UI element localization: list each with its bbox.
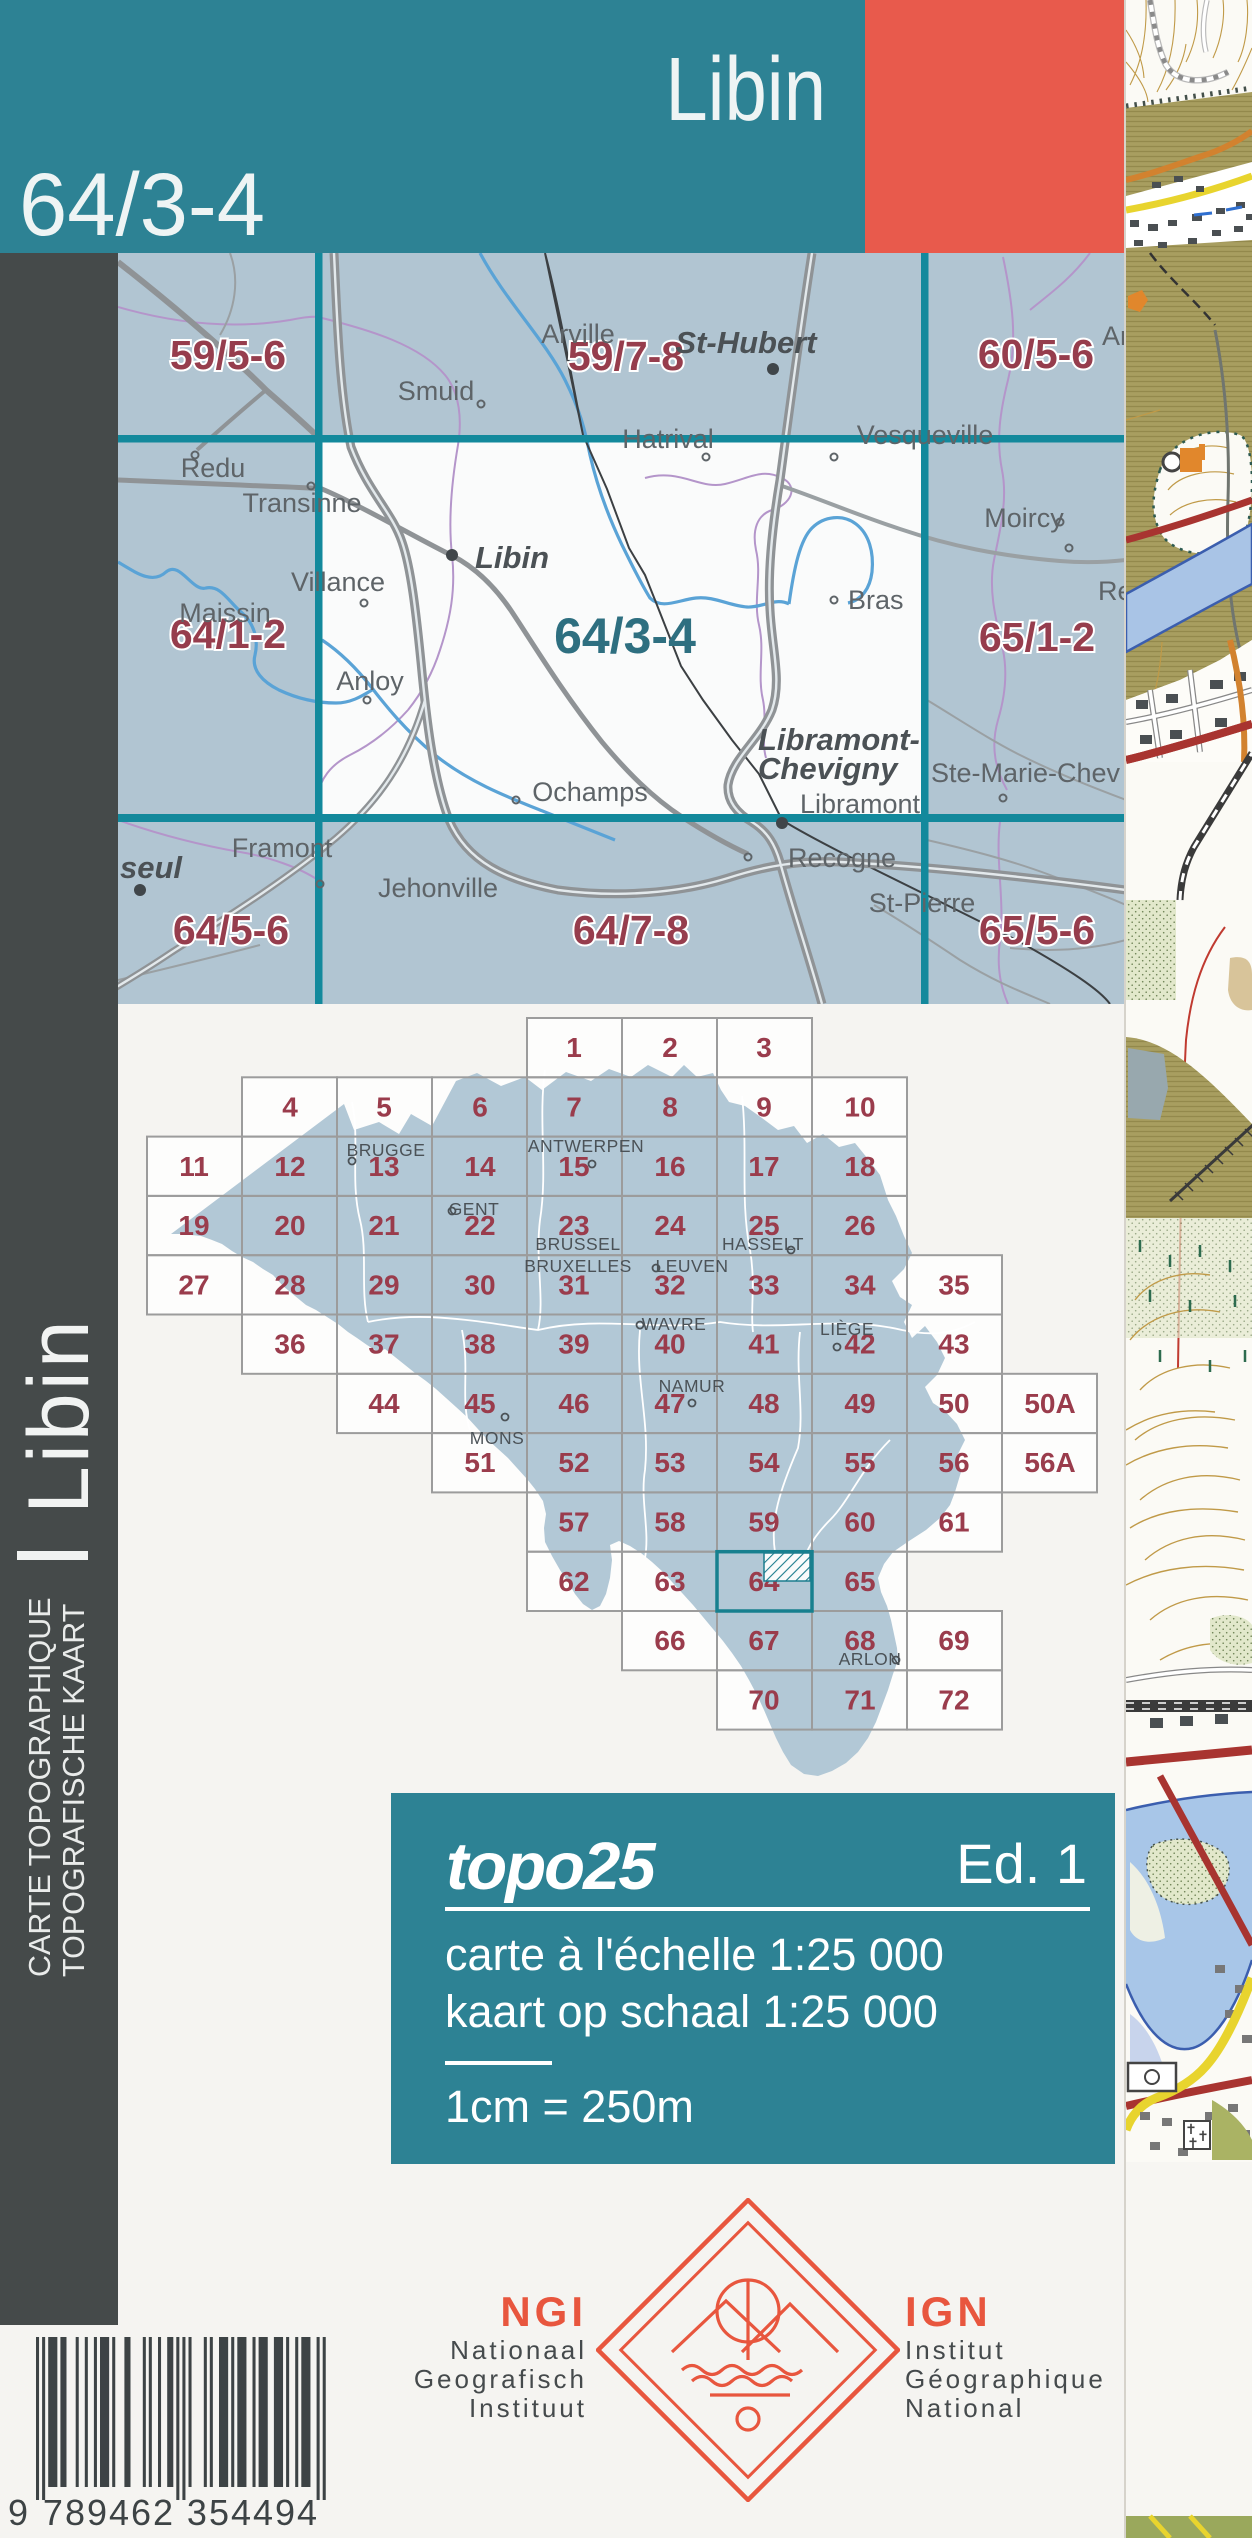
svg-text:LEUVEN: LEUVEN: [655, 1256, 728, 1276]
svg-text:71: 71: [844, 1685, 875, 1716]
svg-text:Ochamps: Ochamps: [532, 777, 648, 807]
svg-text:Libin: Libin: [11, 1317, 107, 1514]
svg-text:9: 9: [756, 1092, 772, 1123]
svg-text:14: 14: [464, 1151, 496, 1182]
svg-text:Arville: Arville: [541, 319, 615, 349]
svg-text:St-Pierre: St-Pierre: [869, 888, 976, 918]
svg-text:37: 37: [368, 1329, 399, 1360]
svg-text:1: 1: [566, 1032, 582, 1063]
svg-text:67: 67: [748, 1625, 779, 1656]
svg-text:NAMUR: NAMUR: [659, 1376, 726, 1396]
svg-text:59: 59: [748, 1507, 779, 1538]
svg-text:53: 53: [654, 1447, 685, 1478]
svg-text:17: 17: [748, 1151, 779, 1182]
svg-text:789462: 789462: [43, 2492, 175, 2533]
svg-text:5: 5: [376, 1092, 392, 1123]
svg-text:Moircy: Moircy: [984, 503, 1064, 533]
svg-text:12: 12: [274, 1151, 305, 1182]
svg-text:3: 3: [756, 1032, 772, 1063]
svg-text:LIÈGE: LIÈGE: [820, 1319, 874, 1339]
svg-text:60/5-6: 60/5-6: [978, 331, 1094, 377]
svg-text:18: 18: [844, 1151, 875, 1182]
svg-text:58: 58: [654, 1507, 685, 1538]
svg-text:39: 39: [558, 1329, 589, 1360]
svg-text:20: 20: [274, 1210, 305, 1241]
svg-text:65: 65: [844, 1566, 875, 1597]
svg-text:60: 60: [844, 1507, 875, 1538]
svg-text:Redu: Redu: [181, 453, 246, 483]
svg-text:33: 33: [748, 1269, 779, 1300]
svg-text:36: 36: [274, 1329, 305, 1360]
svg-text:BRUXELLES: BRUXELLES: [524, 1256, 632, 1276]
svg-text:Villance: Villance: [291, 567, 385, 597]
svg-text:54: 54: [748, 1447, 780, 1478]
svg-text:ANTWERPEN: ANTWERPEN: [528, 1136, 644, 1156]
svg-text:4: 4: [282, 1092, 298, 1123]
svg-text:16: 16: [654, 1151, 685, 1182]
svg-text:29: 29: [368, 1269, 399, 1300]
svg-text:Jehonville: Jehonville: [378, 873, 498, 903]
svg-text:10: 10: [844, 1092, 875, 1123]
svg-text:Framont: Framont: [232, 833, 333, 863]
svg-text:Vesqueville: Vesqueville: [857, 420, 994, 450]
svg-text:45: 45: [464, 1388, 495, 1419]
svg-text:48: 48: [748, 1388, 779, 1419]
svg-text:Smuid: Smuid: [398, 376, 475, 406]
svg-text:64/5-6: 64/5-6: [173, 907, 289, 953]
svg-text:Bras: Bras: [848, 585, 904, 615]
svg-text:64/7-8: 64/7-8: [573, 907, 689, 953]
svg-text:30: 30: [464, 1269, 495, 1300]
svg-text:Recogne: Recogne: [788, 843, 896, 873]
svg-text:BRUSSEL: BRUSSEL: [535, 1234, 620, 1254]
svg-text:61: 61: [938, 1507, 969, 1538]
svg-text:Chevigny: Chevigny: [758, 751, 899, 786]
svg-text:59/5-6: 59/5-6: [170, 332, 286, 378]
svg-text:50: 50: [938, 1388, 969, 1419]
svg-text:CARTE TOPOGRAPHIQUE: CARTE TOPOGRAPHIQUE: [23, 1597, 57, 1977]
svg-text:35: 35: [938, 1269, 969, 1300]
svg-text:GENT: GENT: [449, 1199, 500, 1219]
svg-text:8: 8: [662, 1092, 678, 1123]
svg-text:50A: 50A: [1024, 1388, 1075, 1419]
svg-text:56A: 56A: [1024, 1447, 1075, 1478]
svg-text:34: 34: [844, 1269, 876, 1300]
svg-text:7: 7: [566, 1092, 582, 1123]
svg-text:Libin: Libin: [475, 540, 549, 575]
svg-text:WAVRE: WAVRE: [642, 1314, 707, 1334]
svg-text:26: 26: [844, 1210, 875, 1241]
svg-text:57: 57: [558, 1507, 589, 1538]
svg-text:43: 43: [938, 1329, 969, 1360]
svg-text:64/3-4: 64/3-4: [554, 608, 696, 664]
svg-text:24: 24: [654, 1210, 686, 1241]
svg-text:11: 11: [179, 1151, 209, 1182]
svg-text:354494: 354494: [187, 2492, 319, 2533]
svg-text:28: 28: [274, 1269, 305, 1300]
svg-text:6: 6: [472, 1092, 488, 1123]
svg-text:Ste-Marie-Chev: Ste-Marie-Chev: [931, 758, 1121, 788]
svg-text:49: 49: [844, 1388, 875, 1419]
svg-text:Anloy: Anloy: [336, 666, 404, 696]
svg-text:65/1-2: 65/1-2: [979, 614, 1095, 660]
svg-text:46: 46: [558, 1388, 589, 1419]
svg-text:Hatrival: Hatrival: [622, 424, 714, 454]
svg-text:51: 51: [464, 1447, 495, 1478]
svg-text:62: 62: [558, 1566, 589, 1597]
svg-text:63: 63: [654, 1566, 685, 1597]
svg-text:Maissin: Maissin: [179, 598, 271, 628]
svg-text:72: 72: [938, 1685, 969, 1716]
svg-text:19: 19: [178, 1210, 209, 1241]
svg-text:56: 56: [938, 1447, 969, 1478]
svg-text:Transinne: Transinne: [242, 488, 361, 518]
svg-text:70: 70: [748, 1685, 779, 1716]
svg-text:27: 27: [178, 1269, 209, 1300]
svg-text:St-Hubert: St-Hubert: [675, 325, 818, 360]
svg-text:HASSELT: HASSELT: [722, 1234, 804, 1254]
svg-text:Libramont: Libramont: [800, 789, 921, 819]
svg-text:2: 2: [662, 1032, 678, 1063]
svg-text:69: 69: [938, 1625, 969, 1656]
svg-text:Ambe: Ambe: [1102, 321, 1126, 351]
svg-text:41: 41: [748, 1329, 779, 1360]
svg-text:TOPOGRAFISCHE KAART: TOPOGRAFISCHE KAART: [57, 1604, 91, 1977]
svg-text:MONS: MONS: [470, 1428, 525, 1448]
svg-text:BRUGGE: BRUGGE: [347, 1140, 426, 1160]
svg-text:21: 21: [368, 1210, 399, 1241]
svg-text:52: 52: [558, 1447, 589, 1478]
svg-text:38: 38: [464, 1329, 495, 1360]
svg-text:55: 55: [844, 1447, 875, 1478]
svg-text:✝: ✝: [1187, 2135, 1199, 2151]
svg-text:✝: ✝: [1197, 2128, 1209, 2144]
svg-text:44: 44: [368, 1388, 400, 1419]
svg-text:9: 9: [8, 2492, 28, 2533]
svg-text:seul: seul: [120, 850, 183, 885]
svg-text:66: 66: [654, 1625, 685, 1656]
svg-text:65/5-6: 65/5-6: [979, 907, 1095, 953]
svg-text:Rer: Rer: [1098, 576, 1126, 606]
